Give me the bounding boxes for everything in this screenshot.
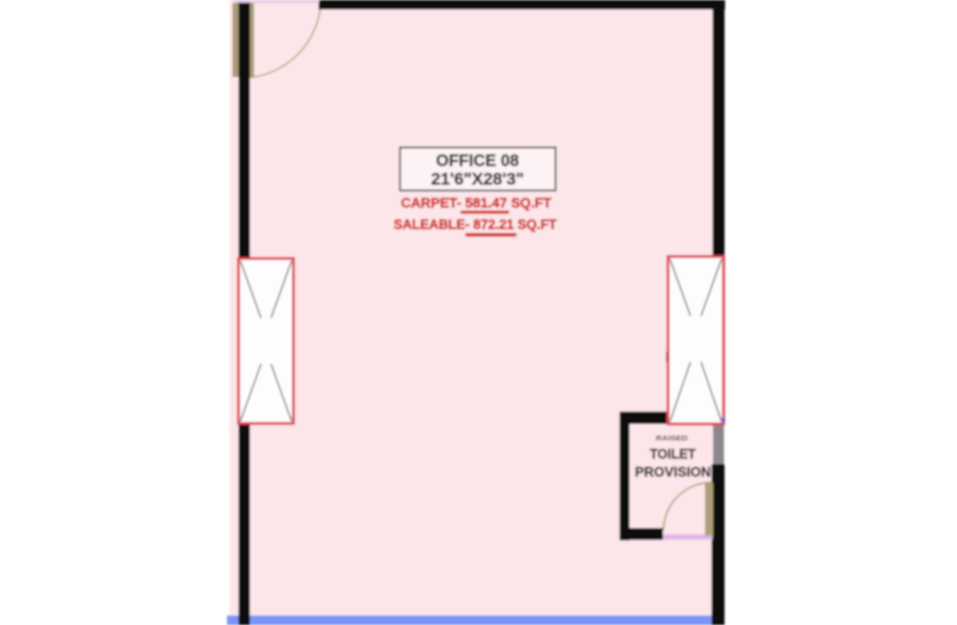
- svg-text:CARPET- 581.47 SQ.FT: CARPET- 581.47 SQ.FT: [401, 196, 552, 211]
- svg-text:SALEABLE- 872.21 SQ.FT: SALEABLE- 872.21 SQ.FT: [394, 217, 558, 232]
- svg-text:RAISED: RAISED: [656, 436, 688, 443]
- svg-text:21'6"X28'3": 21'6"X28'3": [431, 170, 524, 189]
- svg-text:PROVISION: PROVISION: [635, 464, 711, 480]
- svg-text:TOILET: TOILET: [650, 446, 696, 462]
- svg-text:OFFICE 08: OFFICE 08: [436, 151, 519, 170]
